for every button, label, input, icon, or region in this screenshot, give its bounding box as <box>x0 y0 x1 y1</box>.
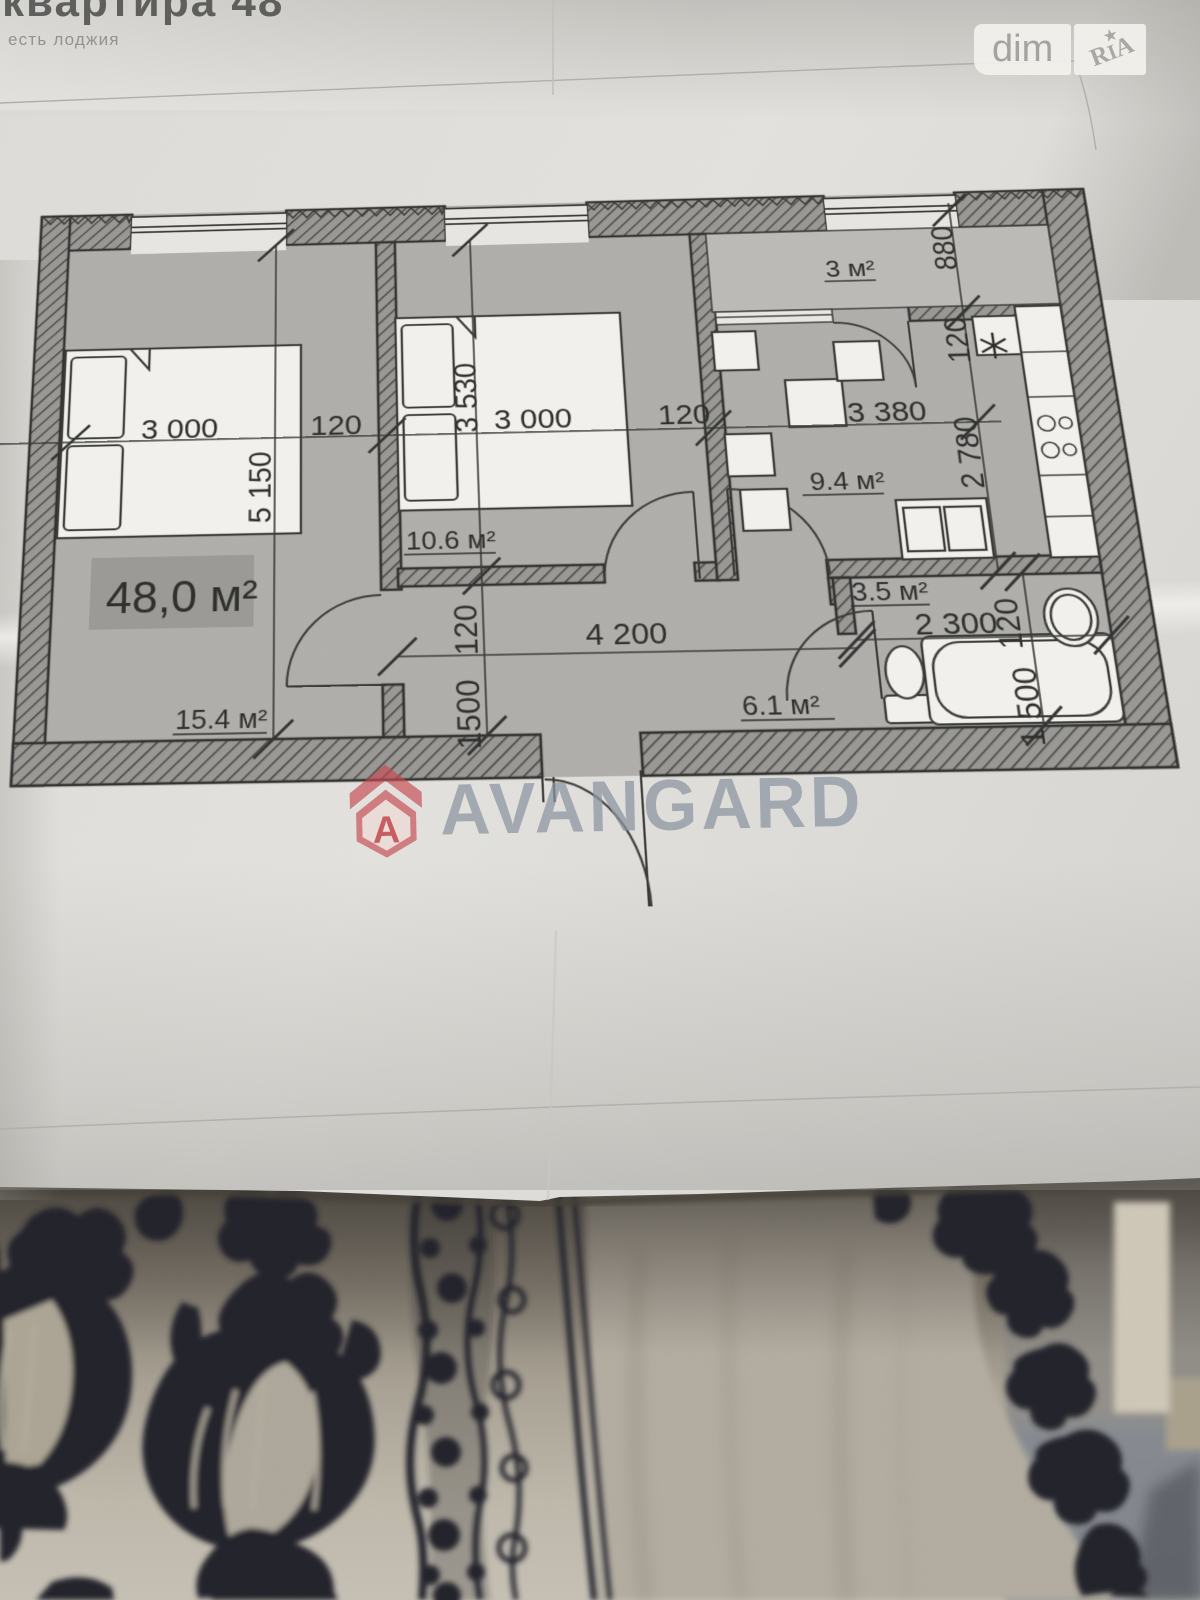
svg-text:4 200: 4 200 <box>585 616 669 652</box>
svg-text:3 530: 3 530 <box>448 362 485 433</box>
svg-text:880: 880 <box>924 226 964 271</box>
svg-text:120: 120 <box>657 398 712 430</box>
svg-text:48,0 м²: 48,0 м² <box>105 572 258 624</box>
svg-text:6.1 м²: 6.1 м² <box>741 689 822 721</box>
svg-text:120: 120 <box>310 409 362 441</box>
svg-text:3 380: 3 380 <box>846 395 929 428</box>
svg-text:A: A <box>372 809 400 852</box>
svg-text:9.4 м²: 9.4 м² <box>808 466 886 496</box>
svg-text:3.5 м²: 3.5 м² <box>850 576 930 607</box>
svg-text:15.4 м²: 15.4 м² <box>175 703 268 735</box>
svg-text:1500: 1500 <box>450 679 489 750</box>
svg-text:3 000: 3 000 <box>141 412 219 445</box>
svg-text:2 300: 2 300 <box>913 606 1000 642</box>
svg-text:5 150: 5 150 <box>242 451 277 524</box>
svg-text:120: 120 <box>447 604 485 656</box>
svg-text:3 000: 3 000 <box>493 402 573 435</box>
svg-text:10.6 м²: 10.6 м² <box>406 525 497 555</box>
svg-text:3 м²: 3 м² <box>824 255 877 282</box>
svg-text:120: 120 <box>937 317 978 364</box>
